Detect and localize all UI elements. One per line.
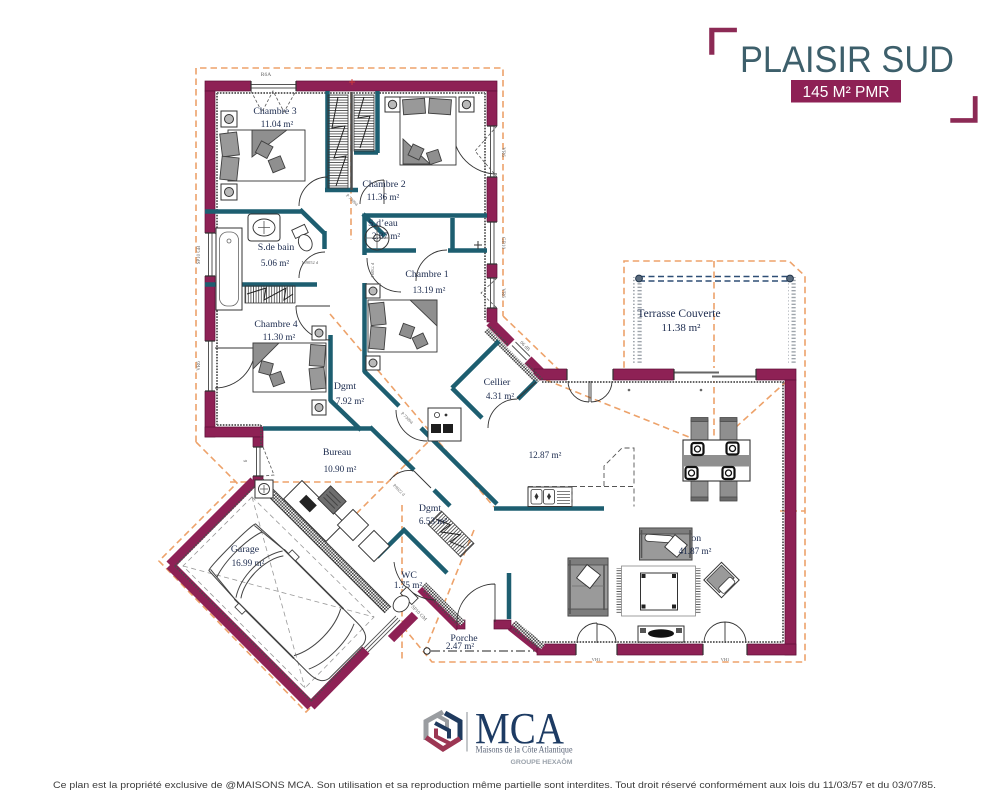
svg-text:Chambre 2: Chambre 2 <box>362 179 405 190</box>
svg-text:VH1: VH1 <box>721 657 730 662</box>
svg-text:GROUPE HEXAŌM: GROUPE HEXAŌM <box>511 758 573 766</box>
svg-text:Garage: Garage <box>231 544 260 555</box>
svg-text:Terrasse Couverte: Terrasse Couverte <box>637 308 720 320</box>
svg-text:11.30 m²: 11.30 m² <box>263 332 296 342</box>
svg-text:6.53 m²: 6.53 m² <box>419 516 448 526</box>
svg-text:Bureau: Bureau <box>323 447 351 458</box>
svg-text:Chambre 1: Chambre 1 <box>405 269 448 280</box>
svg-text:11.36 m²: 11.36 m² <box>367 192 400 202</box>
svg-text:GB10: GB10 <box>500 237 505 249</box>
svg-text:Cellier: Cellier <box>484 377 511 388</box>
svg-text:7.92 m²: 7.92 m² <box>336 396 365 406</box>
svg-text:4.31 m²: 4.31 m² <box>486 391 515 401</box>
svg-text:2.47 m²: 2.47 m² <box>446 641 475 651</box>
svg-text:VR6: VR6 <box>500 147 505 157</box>
svg-text:10.90 m²: 10.90 m² <box>324 464 357 474</box>
svg-text:Chambre 3: Chambre 3 <box>253 106 296 117</box>
svg-text:Ce plan est la propriété exclu: Ce plan est la propriété exclusive de @M… <box>53 780 936 791</box>
svg-text:PLAISIR SUD: PLAISIR SUD <box>740 38 954 80</box>
svg-text:VR6: VR6 <box>500 288 505 298</box>
svg-text:VH1: VH1 <box>592 657 601 662</box>
svg-text:41.87 m²: 41.87 m² <box>679 546 712 556</box>
svg-text:M9052 d: M9052 d <box>302 260 319 265</box>
svg-text:Chambre 4: Chambre 4 <box>254 319 297 330</box>
svg-text:R6A: R6A <box>261 72 271 78</box>
svg-text:P 73094: P 73094 <box>370 263 375 278</box>
svg-text:12.87 m²: 12.87 m² <box>529 450 562 460</box>
svg-text:145 M² PMR: 145 M² PMR <box>803 84 890 101</box>
svg-text:2.87 m²: 2.87 m² <box>372 231 401 241</box>
svg-text:13.19 m²: 13.19 m² <box>413 285 446 295</box>
svg-text:VR6: VR6 <box>197 361 202 371</box>
svg-text:11.04 m²: 11.04 m² <box>261 119 294 129</box>
svg-text:S.de bain: S.de bain <box>258 242 295 253</box>
svg-text:SP10 GB: SP10 GB <box>197 245 202 264</box>
svg-text:11.38 m²: 11.38 m² <box>662 322 702 334</box>
svg-text:Dgmt: Dgmt <box>419 503 442 514</box>
svg-text:16.99 m²: 16.99 m² <box>232 558 265 568</box>
svg-text:Dgmt: Dgmt <box>334 381 357 392</box>
svg-text:Maisons de la Côte Atlantique: Maisons de la Côte Atlantique <box>476 745 574 756</box>
svg-text:5.06 m²: 5.06 m² <box>261 258 290 268</box>
